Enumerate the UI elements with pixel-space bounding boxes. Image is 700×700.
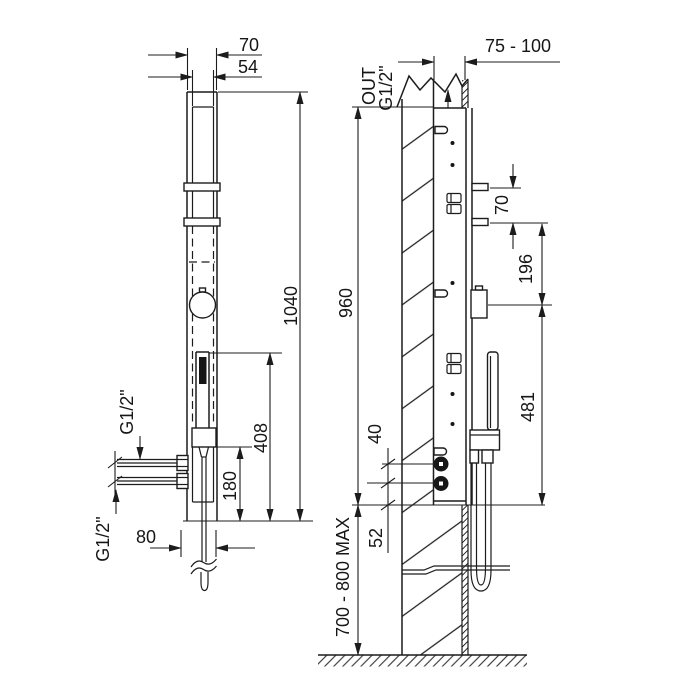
- shower-panel-installation-diagram: 70 54 1040 408 180 G1/2" G1/2" 80: [0, 0, 700, 700]
- inlet-bottom-thread-label: G1/2": [93, 516, 113, 561]
- screw-dots: [451, 141, 455, 426]
- left-view-drawing: [117, 92, 220, 591]
- pipe-clips-lower: [447, 354, 461, 374]
- dim-width-outer-label: 70: [239, 35, 259, 55]
- dim-total-height-label: 1040: [281, 286, 301, 326]
- dim-wall-distance-label: 75 - 100: [485, 36, 551, 56]
- tile-layer: [462, 79, 468, 655]
- fixing-peg-top: [435, 127, 448, 134]
- mounting-bar-top: [184, 183, 220, 191]
- mounting-bar-bottom: [184, 218, 220, 226]
- dim-handshower-height-label: 481: [518, 392, 538, 422]
- dim-outlet-label: 180: [220, 471, 240, 501]
- control-knob-side: [190, 292, 216, 318]
- dim-bracket-to-outlet-label: 196: [516, 254, 536, 284]
- dim-depth-label: 80: [136, 527, 156, 547]
- outlet-box: [471, 290, 487, 318]
- floor: [318, 655, 527, 667]
- dim-handshower-label: 408: [251, 423, 271, 453]
- pipe-clips-upper: [447, 194, 461, 214]
- handshower-front: [470, 352, 500, 591]
- dim-knob-to-bottom-label: 52: [366, 528, 386, 548]
- dim-bracket-spacing-label: 70: [492, 195, 512, 215]
- outlet-thread-label: G1/2": [376, 65, 396, 110]
- handshower-side: [191, 352, 217, 591]
- wall-bracket-bottom: [472, 219, 488, 226]
- dim-width-inner-label: 54: [238, 57, 258, 77]
- technical-drawing-page: 70 54 1040 408 180 G1/2" G1/2" 80: [0, 0, 700, 700]
- inlet-pipes: [117, 456, 188, 489]
- dim-knob-spacing-label: 40: [365, 424, 385, 444]
- fixing-peg-bottom: [434, 448, 447, 455]
- dim-recess-height-label: 960: [336, 288, 356, 318]
- dim-floor-clearance-label: 700 - 800 MAX: [333, 517, 353, 637]
- wall-bracket-top: [472, 184, 488, 191]
- fixing-peg-middle: [435, 290, 448, 297]
- inlet-top-thread-label: G1/2": [117, 389, 137, 434]
